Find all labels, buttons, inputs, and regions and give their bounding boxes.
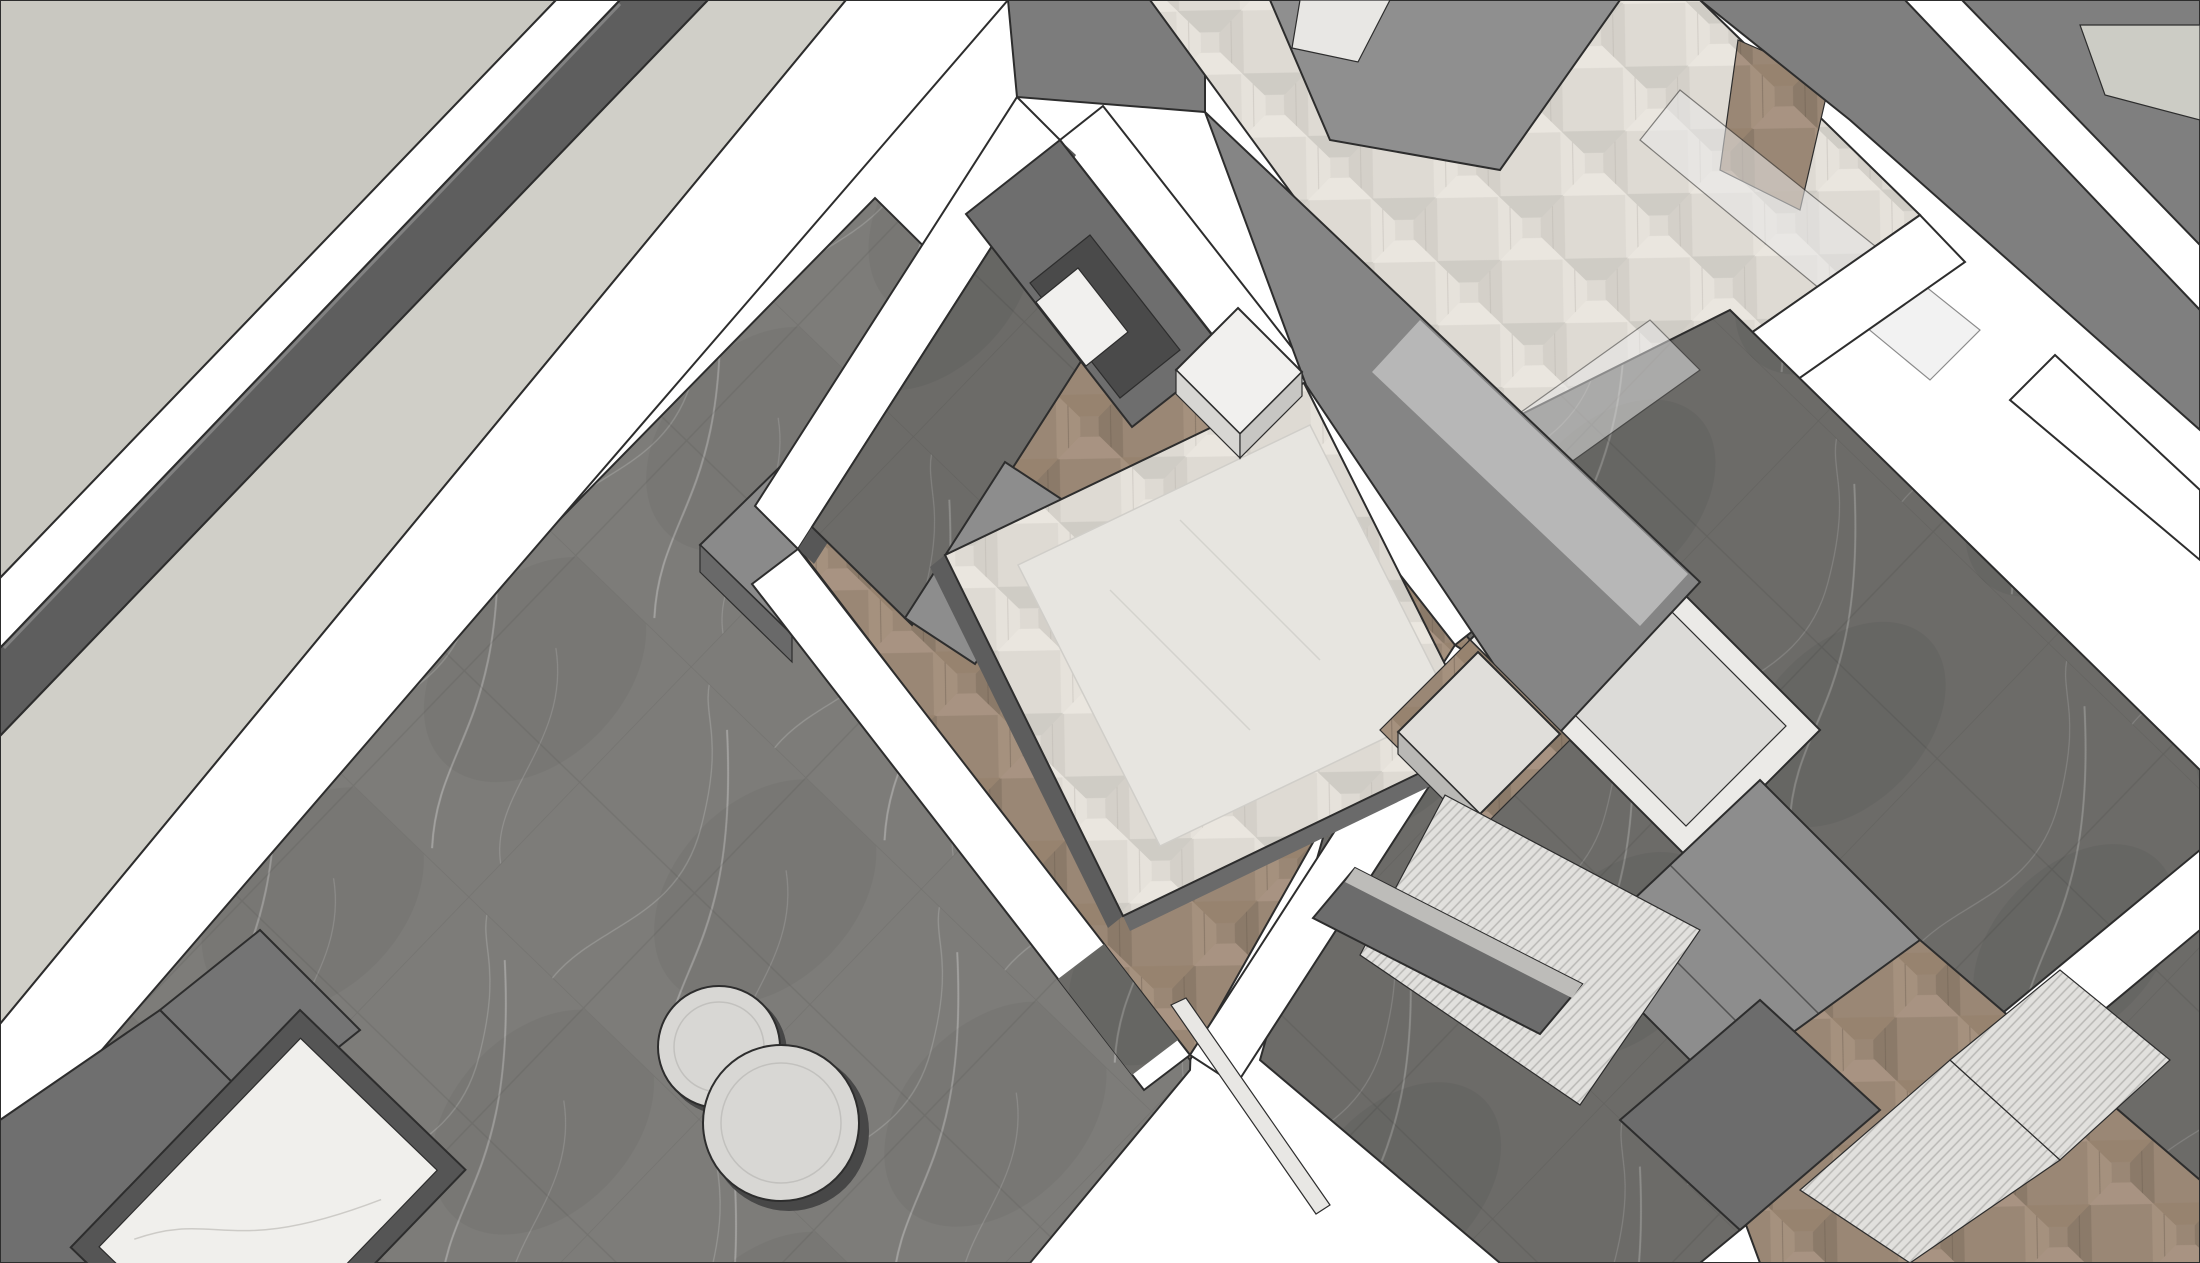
round-side-table-large: [703, 1045, 859, 1201]
scene-svg: [0, 0, 2200, 1263]
3d-viewport[interactable]: [0, 0, 2200, 1263]
